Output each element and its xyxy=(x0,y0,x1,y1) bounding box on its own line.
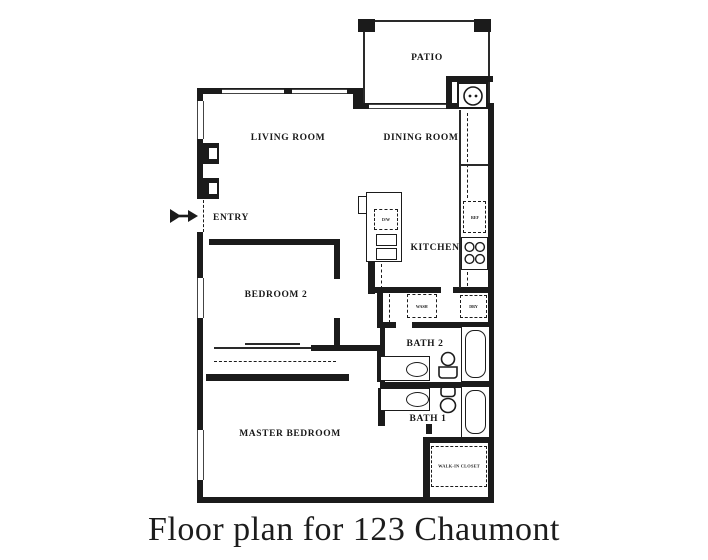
refrigerator-label: REF xyxy=(471,215,479,220)
wall-bedroom2-right-lower xyxy=(334,318,340,348)
closet-track-dashed-line xyxy=(214,361,336,362)
entry-arrow-icon xyxy=(170,206,200,226)
window-living-top-2 xyxy=(292,89,347,94)
kitchen-counter-dashed-below-stove xyxy=(467,272,468,286)
wall-bath1-door-jamb xyxy=(426,424,432,434)
laundry-door-line xyxy=(389,294,390,323)
kitchen-cabinet-divider-line xyxy=(460,164,488,166)
washer-label: WASH xyxy=(416,304,428,309)
bath2-label: BATH 2 xyxy=(407,339,444,349)
patio-label: PATIO xyxy=(411,53,443,63)
kitchen-counter-edge-dashed xyxy=(381,264,382,289)
bath2-toilet-icon xyxy=(436,351,460,381)
bath1-sink-icon xyxy=(406,392,429,407)
dishwasher-label: D/W xyxy=(382,217,390,222)
wall-right xyxy=(488,103,494,503)
dryer-box: DRY xyxy=(460,295,487,318)
water-heater-icon xyxy=(461,85,485,107)
kitchen-right-counter-dashed xyxy=(467,113,468,198)
dishwasher-box: D/W xyxy=(374,209,398,230)
wall-bottom xyxy=(197,497,494,503)
patio-post-left xyxy=(358,19,375,32)
wall-kitchen-bottom-left xyxy=(375,287,441,293)
wall-laundry-left xyxy=(377,293,383,324)
kitchen-label: KITCHEN xyxy=(410,243,459,253)
window-living-top-1 xyxy=(222,89,284,94)
wall-notch-1-inner xyxy=(209,148,217,159)
bath1-toilet-icon xyxy=(436,385,460,415)
wall-closet-pocket-top xyxy=(311,345,381,351)
wall-bedroom2-right-upper xyxy=(334,239,340,279)
dryer-label: DRY xyxy=(469,304,478,309)
wall-walkin-left xyxy=(423,437,430,503)
patio-post-right xyxy=(474,19,491,32)
wh-closet-left-wall xyxy=(446,82,452,109)
wall-bedroom2-top xyxy=(209,239,340,245)
bath1-label: BATH 1 xyxy=(410,414,447,424)
window-patio-door xyxy=(369,104,446,109)
entry-door-line xyxy=(203,200,204,232)
entry-label: ENTRY xyxy=(213,213,249,223)
floor-plan-page: D/W REF WASH DRY xyxy=(0,0,708,560)
refrigerator-box: REF xyxy=(463,201,486,233)
bedroom2-label: BEDROOM 2 xyxy=(245,290,308,300)
bath2-bathtub-icon xyxy=(465,330,486,378)
stove-burners-icon xyxy=(461,237,488,270)
page-title: Floor plan for 123 Chaumont xyxy=(0,511,708,549)
wall-master-top xyxy=(206,374,349,381)
washer-box: WASH xyxy=(407,294,437,318)
kitchen-sink-basin-1 xyxy=(376,234,397,246)
walkin-closet-label: WALK-IN CLOSET xyxy=(438,464,480,469)
bath2-sink-icon xyxy=(406,362,428,377)
living-room-label: LIVING ROOM xyxy=(251,133,325,143)
wall-notch-2-inner xyxy=(209,183,217,194)
kitchen-sink-basin-2 xyxy=(376,248,397,260)
bath1-bathtub-icon xyxy=(465,390,486,434)
window-living-left xyxy=(197,101,204,139)
window-master-left xyxy=(197,430,204,480)
window-bedroom2-left xyxy=(197,278,204,318)
master-bedroom-label: MASTER BEDROOM xyxy=(239,429,341,439)
closet-step-line xyxy=(245,343,300,345)
dining-room-label: DINING ROOM xyxy=(384,133,459,143)
